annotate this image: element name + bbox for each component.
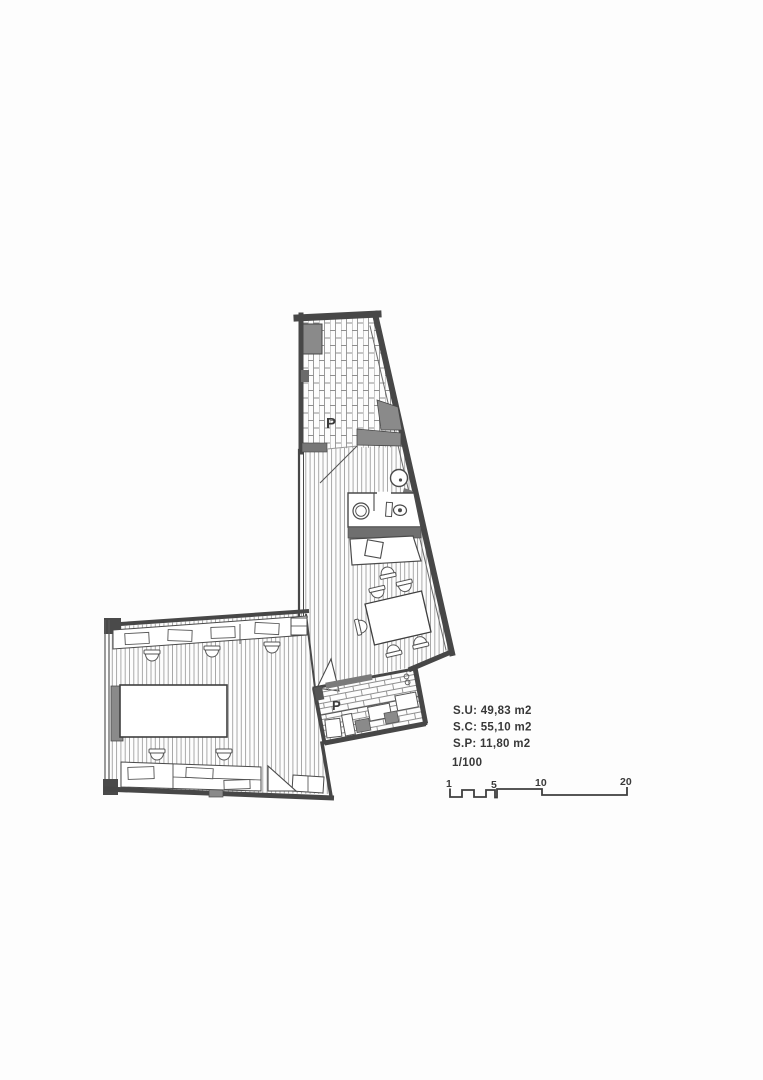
center-table bbox=[120, 685, 227, 737]
round-column bbox=[391, 470, 408, 487]
patio-top-label: P bbox=[326, 415, 336, 432]
wall-block bbox=[301, 370, 309, 382]
planter bbox=[355, 718, 371, 732]
patio-wall-segment bbox=[302, 443, 327, 452]
cabinet bbox=[291, 618, 307, 635]
main-room-floor bbox=[304, 445, 449, 687]
patio-bottom-label: P bbox=[332, 698, 341, 713]
floor-plan-drawing: P bbox=[0, 0, 763, 1080]
desk-item bbox=[125, 632, 150, 644]
scale-tick-1: 1 bbox=[446, 778, 452, 790]
scale-bar: 1 5 10 20 bbox=[446, 776, 632, 798]
desk-item bbox=[224, 780, 250, 790]
area-sp: S.P: 11,80 m2 bbox=[453, 738, 530, 750]
patio-box bbox=[395, 692, 418, 711]
desk-item bbox=[168, 630, 192, 642]
desk-item bbox=[186, 767, 213, 778]
scanned-page: P bbox=[0, 0, 763, 1080]
desk-item bbox=[211, 627, 235, 639]
planter bbox=[384, 711, 399, 724]
desk-item bbox=[255, 622, 280, 634]
desk-item bbox=[128, 767, 154, 780]
area-su: S.U: 49,83 m2 bbox=[453, 705, 532, 717]
patio-column bbox=[303, 324, 322, 354]
scale-tick-20: 20 bbox=[620, 776, 632, 788]
scale-tick-10: 10 bbox=[535, 777, 547, 789]
patio-box bbox=[325, 718, 342, 738]
scale-text: 1/100 bbox=[452, 757, 482, 769]
column-dot bbox=[399, 478, 402, 481]
area-sc: S.C: 55,10 m2 bbox=[453, 722, 532, 734]
area-annotations: S.U: 49,83 m2 S.C: 55,10 m2 S.P: 11,80 m… bbox=[452, 705, 532, 769]
stool bbox=[365, 540, 384, 559]
scale-tick-5: 5 bbox=[491, 779, 497, 791]
